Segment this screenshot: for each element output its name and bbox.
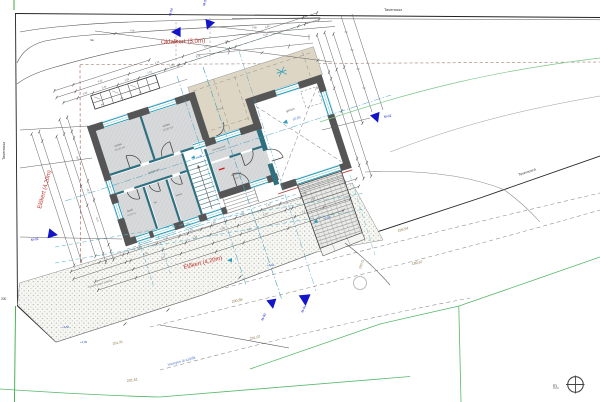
svg-text:+4,92: +4,92 — [267, 263, 275, 267]
svg-text:Tavernusz: Tavernusz — [384, 7, 402, 12]
svg-text:Tavernusz: Tavernusz — [1, 142, 6, 160]
svg-text:+4,50: +4,50 — [62, 325, 70, 329]
svg-text:fák: fák — [90, 38, 95, 42]
svg-text:m: m — [553, 383, 557, 388]
svg-text:200: 200 — [1, 297, 7, 301]
svg-text:+4,99: +4,99 — [80, 340, 88, 344]
